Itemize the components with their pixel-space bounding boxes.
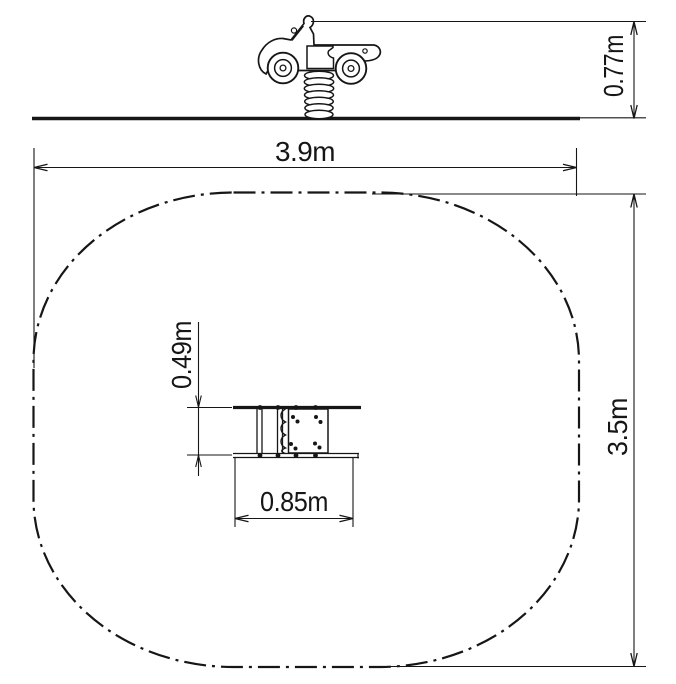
safety-zone-boundary [34, 193, 580, 668]
handle-dot [291, 28, 296, 33]
plank-slats [257, 409, 283, 453]
seat-cutout [307, 46, 334, 69]
side-view: 0.77m [32, 16, 646, 119]
front-wheel [268, 53, 299, 84]
rear-wheel [336, 53, 367, 84]
spring-coil-side [304, 71, 333, 119]
dimension-label-zone-width: 3.9m [275, 136, 335, 167]
spring-coil-plan [281, 409, 286, 454]
dimension-zone-width [34, 148, 577, 368]
equipment-footprint [233, 405, 361, 458]
dimension-label-zone-depth: 3.5m [602, 398, 633, 456]
dimension-label-equipment-depth: 0.49m [166, 321, 197, 389]
dimension-label-overall-height: 0.77m [598, 35, 629, 97]
dimension-label-equipment-width: 0.85m [260, 486, 328, 517]
plan-view: 3.9m 3.5m [34, 136, 647, 667]
drawing-canvas: 0.77m 3.9m 3.5m [0, 0, 676, 684]
bolt-dots [258, 405, 323, 458]
technical-drawing: 0.77m 3.9m 3.5m [0, 0, 676, 684]
